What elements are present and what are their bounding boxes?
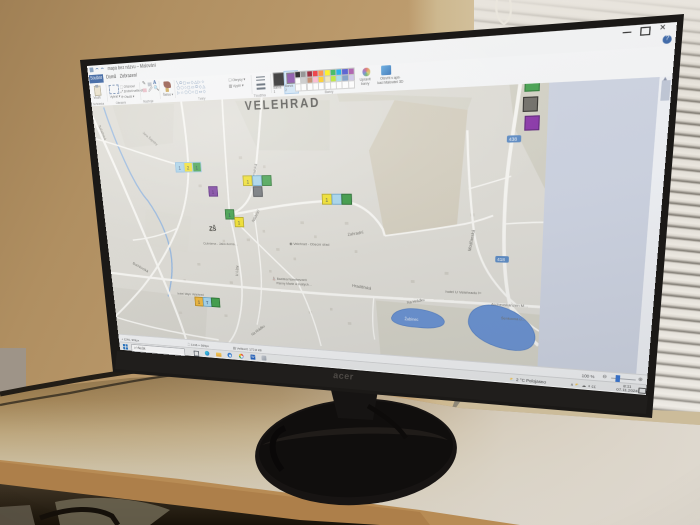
svg-text:U Lípy: U Lípy [235,265,239,277]
svg-text:438: 438 [509,137,517,142]
svg-text:Žabinec: Žabinec [404,316,418,322]
svg-text:ZŠ: ZŠ [209,224,217,232]
svg-text:418: 418 [497,258,505,263]
svg-text:acer: acer [333,370,354,382]
svg-text:Cukrárna - Jako doma…: Cukrárna - Jako doma… [203,241,238,246]
